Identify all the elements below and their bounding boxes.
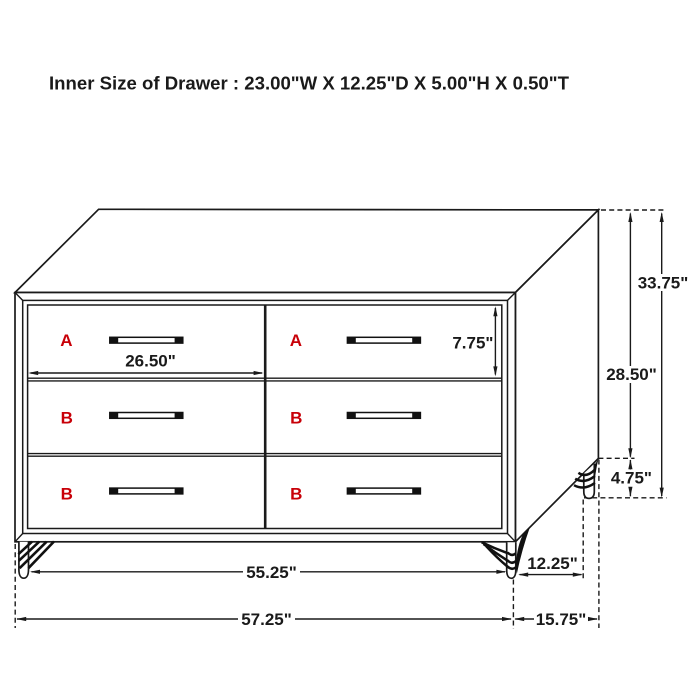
- svg-text:B: B: [290, 485, 302, 504]
- svg-text:A: A: [60, 331, 72, 350]
- svg-text:A: A: [290, 331, 302, 350]
- svg-text:7.75": 7.75": [452, 334, 493, 353]
- svg-text:4.75": 4.75": [611, 469, 652, 488]
- svg-text:28.50": 28.50": [606, 365, 657, 384]
- svg-text:15.75": 15.75": [536, 610, 587, 629]
- svg-text:B: B: [290, 409, 302, 428]
- svg-text:33.75": 33.75": [638, 273, 689, 292]
- svg-text:12.25": 12.25": [527, 554, 578, 573]
- svg-text:Inner Size of Drawer : 23.00"W: Inner Size of Drawer : 23.00"W X 12.25"D…: [49, 73, 570, 94]
- svg-text:26.50": 26.50": [125, 352, 176, 371]
- svg-text:57.25": 57.25": [241, 610, 292, 629]
- svg-text:B: B: [61, 409, 73, 428]
- svg-text:55.25": 55.25": [246, 563, 297, 582]
- svg-text:B: B: [61, 485, 73, 504]
